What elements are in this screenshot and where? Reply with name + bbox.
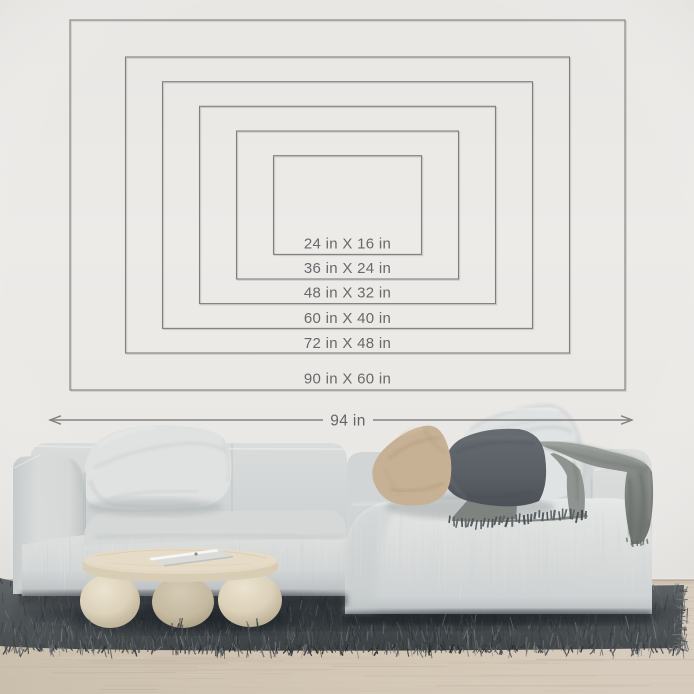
svg-text:94 in: 94 in xyxy=(330,413,366,430)
